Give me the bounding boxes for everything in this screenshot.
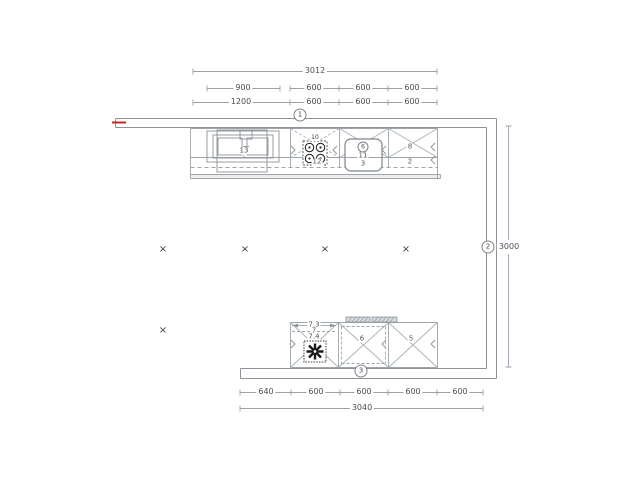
item-label-low-left-c: 7.4 [307,334,320,341]
dim-right-total: 3000 [497,243,521,251]
dim-top-row3-1: 1200 [229,98,253,106]
dimension-lines [193,69,512,412]
dim-top-row3-2: 600 [304,98,323,106]
item-label-low-mid: 6 [359,336,365,343]
sink-bowl-right [247,138,268,155]
floor-plan: 3012 900 600 600 600 1200 600 600 600 30… [0,0,640,480]
wall-badge-1: 1 [294,109,307,122]
fan-symbol [304,341,326,362]
dim-top-row3-3: 600 [353,98,372,106]
item-label-hob-top: 10 [310,135,320,141]
dim-top-row2-3: 600 [353,84,372,92]
dim-bot-row1-4: 600 [403,388,422,396]
dim-top-row2-2: 600 [304,84,323,92]
item-label-mid-a: 11 [358,153,369,160]
dim-bot-row1-2: 600 [306,388,325,396]
light-cross-2: × [241,245,249,255]
hatch-bars [346,317,397,322]
wall-badge-3: 3 [355,365,368,378]
light-cross-1: × [159,245,167,255]
light-cross-4: × [402,245,410,255]
dim-top-row2-4: 600 [402,84,421,92]
item-label-sink: 13 [239,148,250,155]
dim-bot-row1-3: 600 [354,388,373,396]
light-cross-3: × [321,245,329,255]
dim-top-total: 3012 [303,67,327,75]
dim-bot-row1-5: 600 [450,388,469,396]
dim-bot-row1-1: 640 [256,388,275,396]
light-cross-5: × [159,326,167,336]
item-label-mid-b: 3 [360,161,366,168]
dim-top-row2-1: 900 [233,84,252,92]
item-label-right-a: 8 [407,144,413,151]
dim-bot-total: 3040 [350,404,374,412]
item-label-low-right: 5 [408,336,414,343]
dim-top-row3-4: 600 [402,98,421,106]
item-label-hob: 12 [312,159,323,166]
wall-badge-2: 2 [482,241,495,254]
item-label-right-b: 2 [407,159,413,166]
